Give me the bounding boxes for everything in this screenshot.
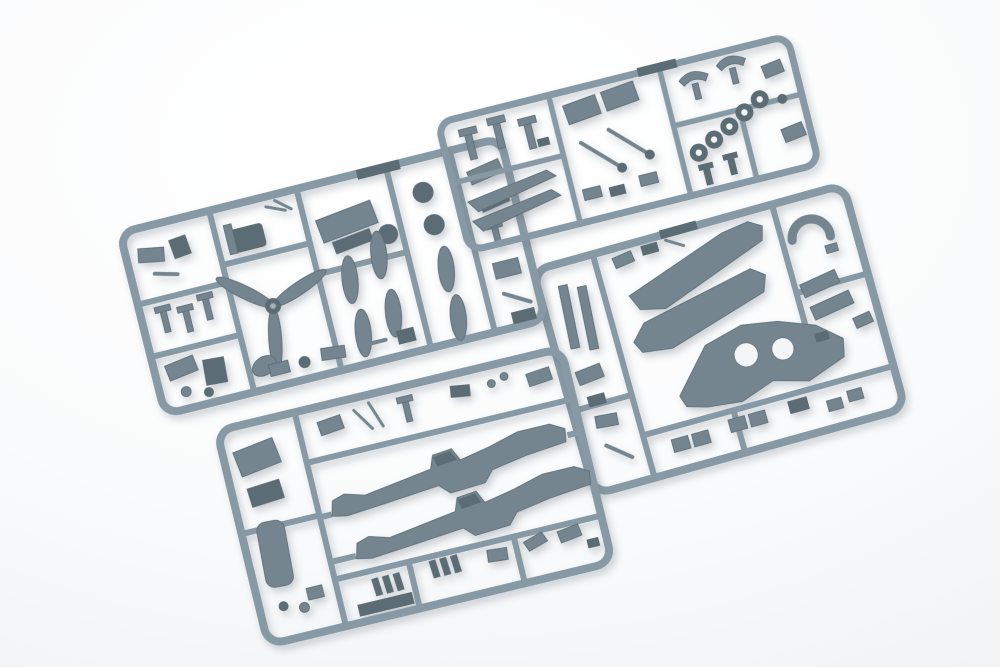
slat-strips: [554, 279, 603, 355]
cockpit-tub: [314, 195, 400, 260]
small-brackets-cluster: [135, 234, 196, 283]
oil-cooler-housing: [231, 437, 290, 510]
supercharger-intake: [788, 214, 839, 262]
sprue-d-gate-tab: [659, 221, 698, 240]
undercarriage-legs: [579, 120, 657, 180]
fuselage-half-right: [323, 421, 573, 521]
photo-of-model-kit-sprues: [0, 0, 1000, 667]
intake-scoop: [255, 519, 295, 589]
main-wheels: [410, 179, 447, 238]
sprues-illustration: [0, 0, 1000, 667]
small-parts-cluster: [582, 172, 659, 204]
small-parts-cluster: [276, 585, 327, 618]
sprue-a-gate-tab: [356, 159, 401, 179]
sprue-c-fuselage-sprue: [217, 348, 613, 645]
sprue-b-gate-tab: [637, 59, 678, 77]
wheel-hub-rings: [679, 88, 780, 163]
